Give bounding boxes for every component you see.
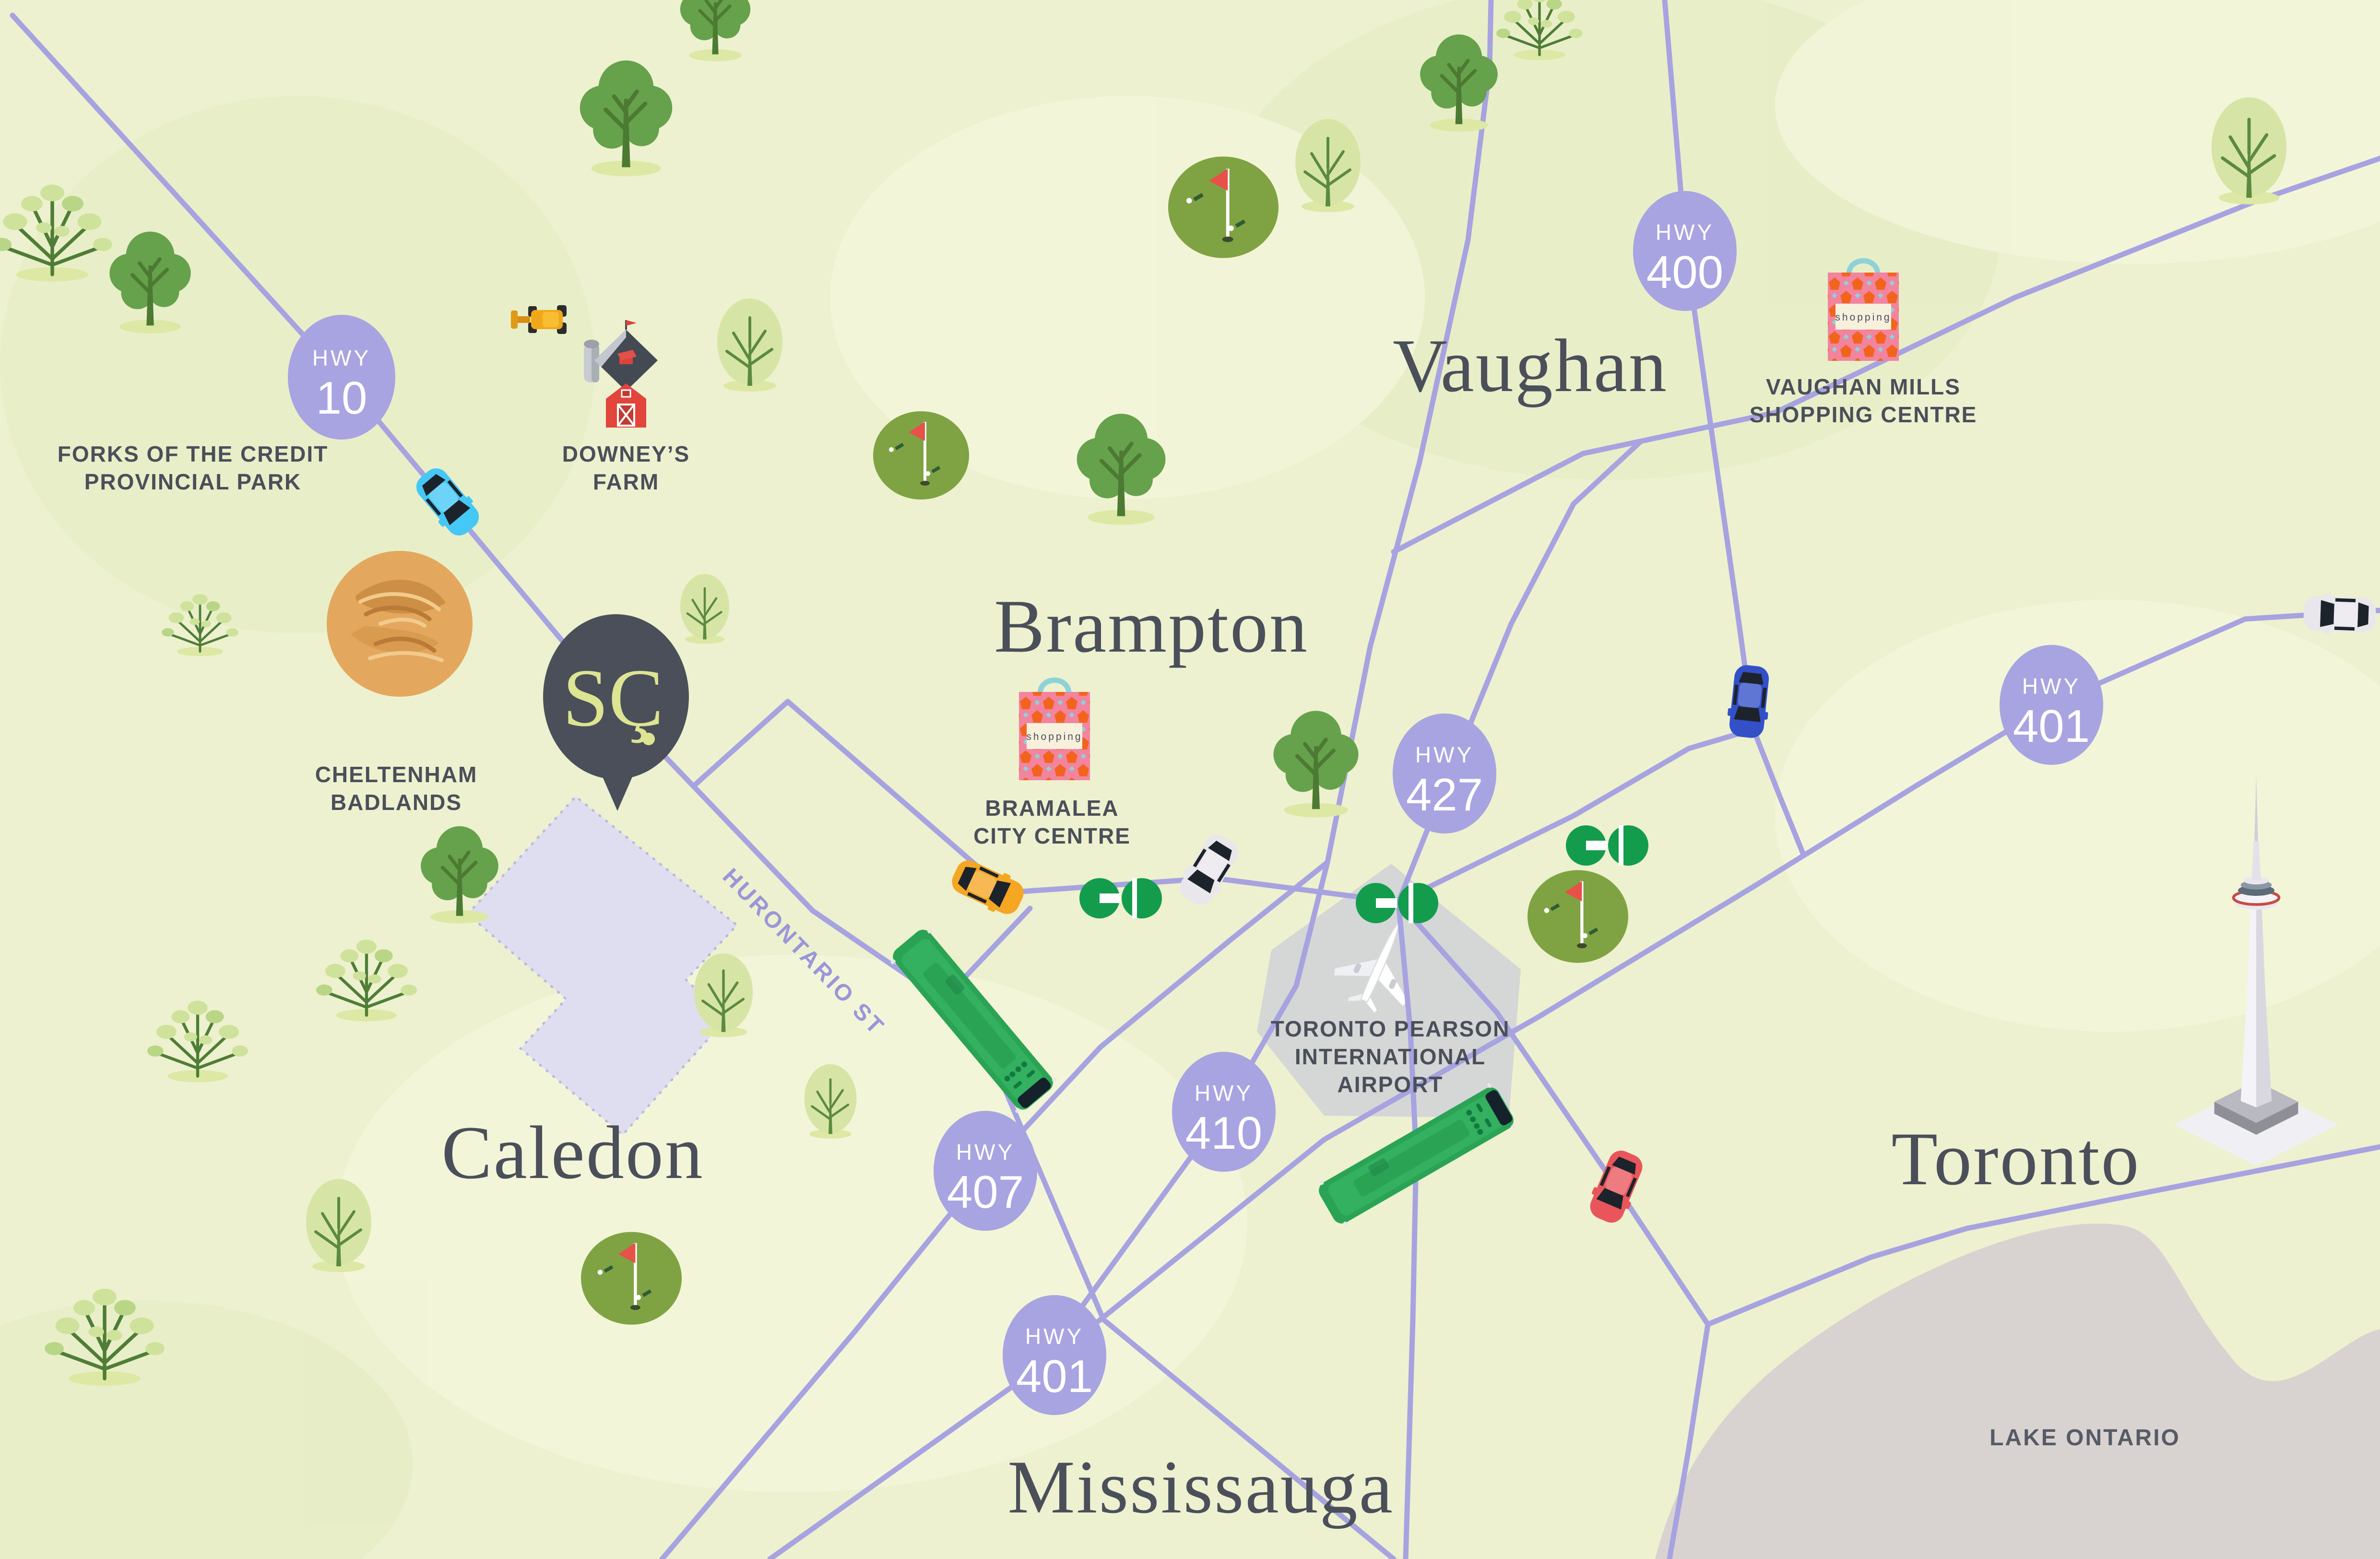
poi-vaughan-mills-line1: VAUGHAN MILLS <box>1766 374 1961 399</box>
poi-downeys-line1: DOWNEY’S <box>562 441 690 466</box>
poi-bramalea-line2: CITY CENTRE <box>973 823 1131 848</box>
hwy-410-badge: HWY 410 <box>1172 1052 1276 1172</box>
poi-pearson-line2: INTERNATIONAL <box>1295 1044 1486 1069</box>
city-label-mississauga: Mississauga <box>1007 1445 1394 1529</box>
hwy-407-badge: HWY 407 <box>934 1111 1037 1231</box>
badge-label: HWY <box>2022 674 2081 699</box>
pin-monogram: SÇ <box>563 653 663 744</box>
shopping-bag-icon: shopping <box>1828 261 1899 361</box>
poi-cheltenham-line2: BADLANDS <box>331 790 462 815</box>
poi-cheltenham-line1: CHELTENHAM <box>315 762 478 787</box>
badge-number: 401 <box>2013 701 2090 752</box>
city-label-brampton: Brampton <box>994 584 1309 668</box>
badge-label: HWY <box>1195 1081 1253 1106</box>
lake-ontario-label: LAKE ONTARIO <box>1989 1425 2180 1451</box>
car-icon <box>2303 593 2377 635</box>
badge-label: HWY <box>1415 742 1474 767</box>
bag-label: shopping <box>1835 312 1891 323</box>
cheltenham-badlands-icon <box>327 551 473 697</box>
golf-course-icon <box>1168 156 1279 258</box>
badge-number: 410 <box>1185 1107 1262 1159</box>
poi-vaughan-mills-line2: SHOPPING CENTRE <box>1750 402 1977 427</box>
badge-number: 401 <box>1016 1351 1093 1402</box>
poi-pearson-line1: TORONTO PEARSON <box>1271 1016 1510 1041</box>
hwy-401-east-badge: HWY 401 <box>2000 645 2103 765</box>
hwy-10-badge: HWY 10 <box>288 315 395 440</box>
gta-illustrated-map: shopping shopping SÇ <box>0 0 2380 1559</box>
golf-course-icon <box>873 411 969 500</box>
badge-number: 10 <box>316 372 367 424</box>
badge-label: HWY <box>312 345 371 370</box>
badge-label: HWY <box>1656 220 1714 245</box>
golf-course-icon <box>581 1232 682 1324</box>
shopping-bag-icon: shopping <box>1019 680 1090 781</box>
poi-downeys-line2: FARM <box>593 469 659 494</box>
badge-label: HWY <box>956 1140 1015 1165</box>
bag-label: shopping <box>1026 731 1082 742</box>
hwy-401-south-badge: HWY 401 <box>1003 1295 1106 1415</box>
poi-pearson-line3: AIRPORT <box>1338 1072 1444 1097</box>
badge-label: HWY <box>1025 1324 1084 1349</box>
golf-course-icon <box>1527 870 1628 963</box>
poi-bramalea-line1: BRAMALEA <box>985 796 1119 821</box>
poi-forks-line2: PROVINCIAL PARK <box>84 469 302 494</box>
city-label-toronto: Toronto <box>1892 1117 2141 1201</box>
badge-number: 427 <box>1406 769 1483 821</box>
hwy-400-badge: HWY 400 <box>1633 191 1737 311</box>
badge-number: 400 <box>1646 247 1723 298</box>
badge-number: 407 <box>947 1166 1024 1218</box>
city-label-vaughan: Vaughan <box>1393 324 1668 408</box>
city-label-caledon: Caledon <box>441 1111 704 1195</box>
poi-forks-line1: FORKS OF THE CREDIT <box>58 441 328 466</box>
hwy-427-badge: HWY 427 <box>1393 714 1496 833</box>
